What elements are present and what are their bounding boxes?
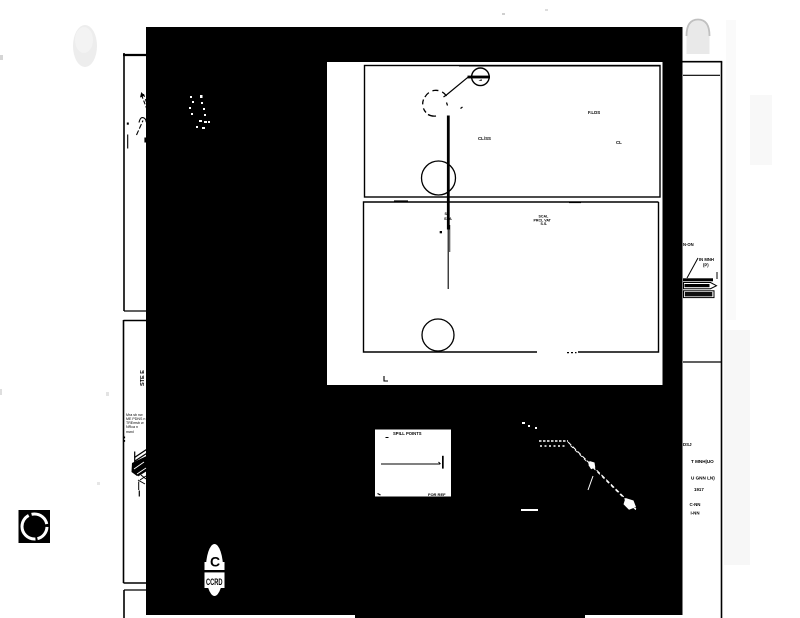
svg-text:I-NN: I-NN: [691, 511, 700, 516]
svg-text:CL/SS: CL/SS: [478, 136, 491, 141]
svg-text:1917: 1917: [694, 487, 704, 492]
svg-text:FOR REF: FOR REF: [428, 492, 446, 497]
svg-text:F.LDS: F.LDS: [588, 110, 600, 115]
svg-text:C-NN: C-NN: [690, 502, 701, 507]
svg-text:DSJ: DSJ: [683, 442, 692, 447]
svg-text:N-ON: N-ON: [683, 242, 694, 247]
svg-text:C: C: [210, 554, 220, 570]
svg-text:CCRD: CCRD: [206, 577, 223, 588]
svg-text:NRca n: NRca n: [126, 425, 138, 429]
svg-text:(P): (P): [703, 263, 709, 268]
svg-text:CL: CL: [616, 140, 622, 145]
svg-text:mwd: mwd: [126, 430, 134, 434]
svg-text:U GNN LN): U GNN LN): [691, 476, 715, 481]
svg-text:STE E: STE E: [140, 370, 146, 386]
svg-text:S.S.: S.S.: [541, 222, 548, 226]
svg-text:T MNH|UO: T MNH|UO: [691, 459, 714, 464]
svg-text:IN MNH: IN MNH: [699, 257, 714, 262]
svg-text:STA: STA: [444, 216, 452, 221]
svg-text:SPILL POINTS: SPILL POINTS: [393, 431, 422, 436]
